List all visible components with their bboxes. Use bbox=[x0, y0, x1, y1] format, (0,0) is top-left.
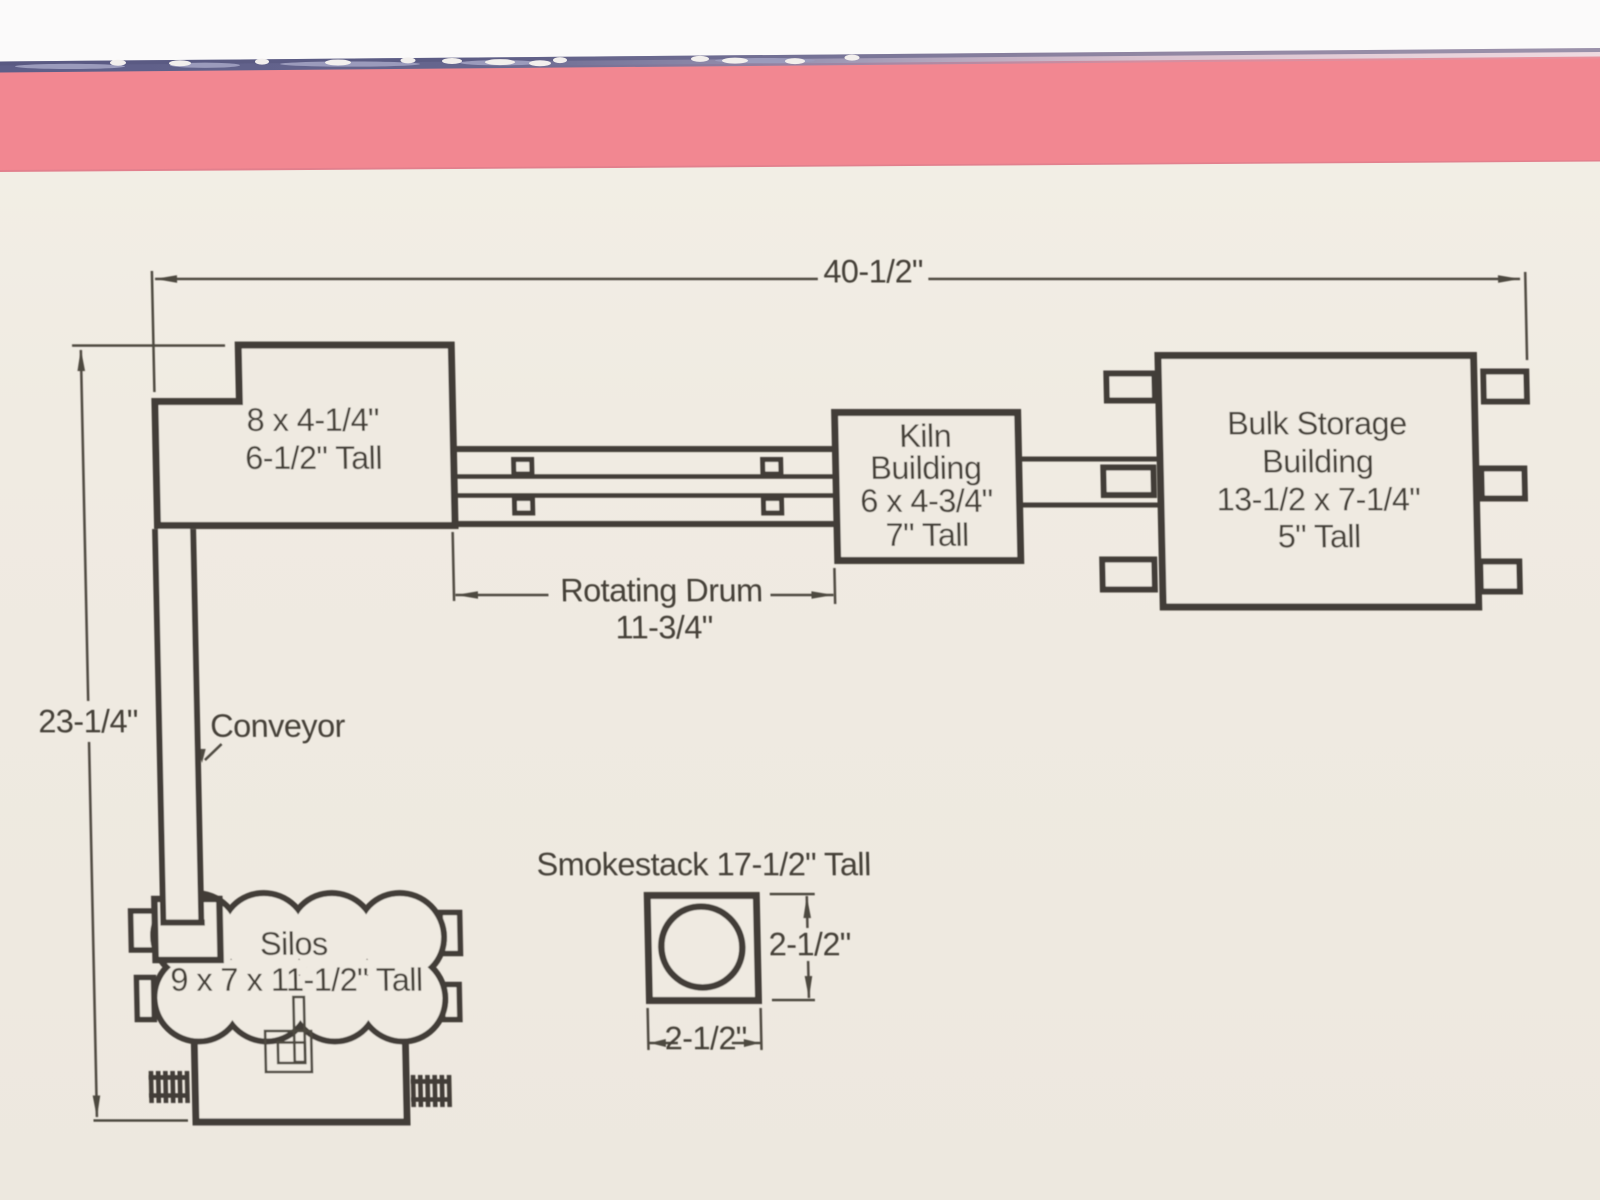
svg-text:Silos: Silos bbox=[260, 926, 329, 962]
svg-text:9 x 7 x 11-1/2" Tall: 9 x 7 x 11-1/2" Tall bbox=[170, 962, 423, 998]
svg-text:13-1/2 x 7-1/4": 13-1/2 x 7-1/4" bbox=[1216, 482, 1421, 518]
svg-text:11-3/4": 11-3/4" bbox=[615, 610, 713, 646]
svg-text:Building: Building bbox=[870, 450, 982, 486]
svg-text:Kiln: Kiln bbox=[899, 418, 952, 454]
svg-text:6-1/2" Tall: 6-1/2" Tall bbox=[245, 440, 383, 476]
svg-text:Building: Building bbox=[1262, 444, 1374, 480]
svg-text:2-1/2": 2-1/2" bbox=[768, 927, 851, 963]
svg-text:Rotating Drum: Rotating Drum bbox=[560, 573, 763, 609]
svg-text:23-1/4": 23-1/4" bbox=[38, 704, 139, 740]
svg-text:7" Tall: 7" Tall bbox=[885, 517, 969, 553]
svg-text:Smokestack 17-1/2" Tall: Smokestack 17-1/2" Tall bbox=[536, 847, 871, 883]
svg-text:2-1/2": 2-1/2" bbox=[664, 1021, 747, 1057]
svg-text:5" Tall: 5" Tall bbox=[1277, 519, 1361, 555]
svg-text:Conveyor: Conveyor bbox=[210, 708, 346, 744]
svg-text:Bulk Storage: Bulk Storage bbox=[1227, 406, 1407, 442]
svg-text:8 x 4-1/4": 8 x 4-1/4" bbox=[246, 402, 379, 438]
svg-text:6 x 4-3/4": 6 x 4-3/4" bbox=[860, 483, 993, 519]
svg-text:40-1/2": 40-1/2" bbox=[823, 254, 924, 290]
